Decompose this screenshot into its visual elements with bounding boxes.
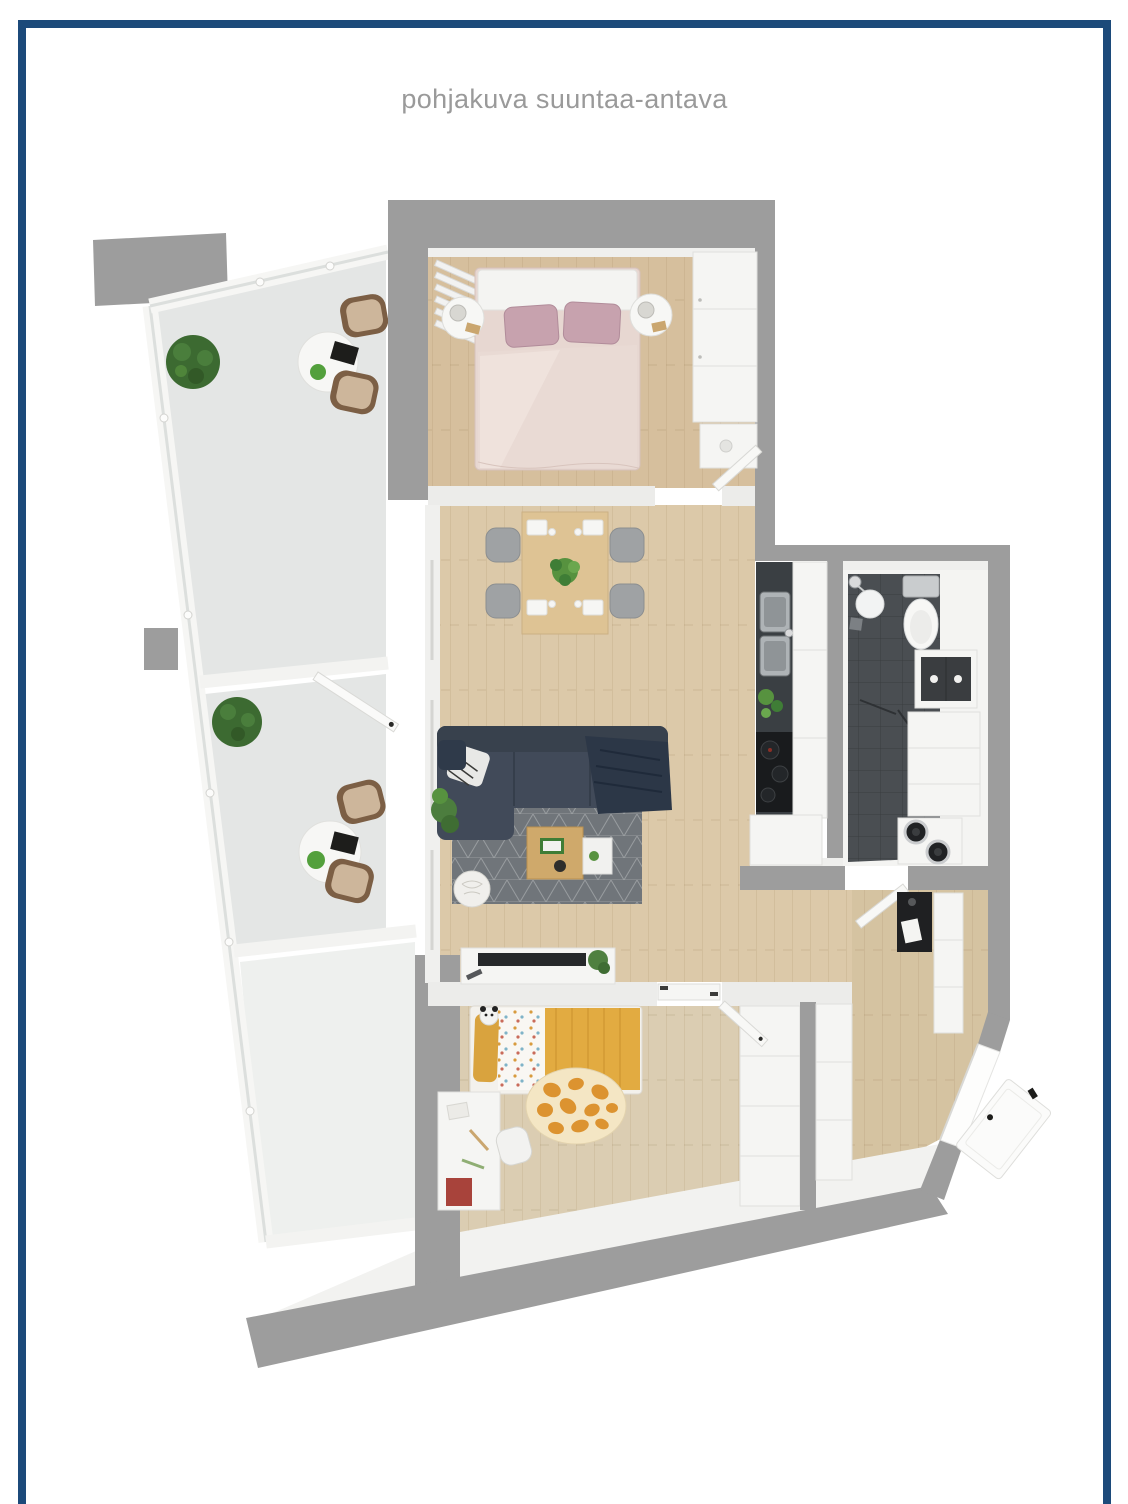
toilet — [903, 576, 939, 649]
red-drawer — [446, 1178, 472, 1206]
floor-drain — [849, 617, 863, 631]
faucet — [785, 629, 793, 637]
bathroom-tall-cabinet — [908, 712, 980, 816]
wall-hall-top-left — [740, 866, 845, 890]
kids-top-wall-right — [722, 982, 852, 1006]
kitchen-tall-cabinets — [793, 562, 827, 818]
corridor-floor-planks — [755, 890, 852, 982]
bathwing-top-lining — [843, 561, 988, 570]
wall-bathwing-top — [755, 545, 1010, 561]
living-kids-doorway-threshold — [658, 984, 720, 1000]
giraffe-print-rug — [526, 1068, 626, 1144]
tv — [478, 953, 586, 966]
shrub-planter — [166, 335, 220, 389]
bedroom — [435, 252, 762, 491]
coat-wardrobe-column — [816, 1004, 852, 1180]
shrub-planter — [212, 697, 262, 747]
kitchen — [750, 562, 827, 865]
cooktop — [756, 732, 793, 812]
nightstand-left — [442, 297, 484, 339]
wall-top — [388, 200, 775, 248]
kids-desk — [438, 1092, 500, 1210]
dining-chair — [610, 584, 644, 618]
kitchen-base-cabinet — [750, 815, 822, 865]
nightstand-right — [630, 294, 672, 336]
wardrobe-divider-wall — [800, 1002, 816, 1210]
wall-bedroom-left — [388, 200, 428, 500]
plush-panda — [480, 1006, 498, 1025]
washer-dryer-stack — [898, 818, 962, 864]
shower-dish — [856, 590, 884, 618]
double-bed — [475, 268, 640, 470]
page: pohjakuva suuntaa-antava — [0, 0, 1128, 1504]
wall-bathwing-right — [988, 545, 1010, 1020]
pillow-left — [504, 304, 560, 348]
mirror-vanity — [915, 650, 977, 708]
pillow-navy — [438, 740, 466, 770]
dining-chair — [610, 528, 644, 562]
floor-plan — [0, 0, 1128, 1504]
side-pouf — [454, 871, 490, 907]
railing-anchor-block — [144, 628, 178, 670]
dining-chair — [486, 584, 520, 618]
wall-kitchen-bath-divider — [827, 561, 843, 868]
black-wall-shelf — [897, 892, 932, 952]
wall-bedroom-right — [755, 200, 775, 561]
tv-sideboard — [461, 948, 615, 984]
bedroom-living-wall-right — [722, 486, 755, 506]
hall-sideboard — [934, 893, 963, 1033]
kids-wardrobe-column — [740, 1006, 800, 1206]
balcony-wing — [93, 233, 416, 1242]
wall-hall-top-right — [908, 866, 988, 890]
kids-top-wall-left — [428, 982, 657, 1006]
wardrobe — [693, 252, 757, 422]
bedroom-living-wall-left — [428, 486, 655, 506]
dining-chair — [486, 528, 520, 562]
pillow-right — [563, 302, 621, 345]
